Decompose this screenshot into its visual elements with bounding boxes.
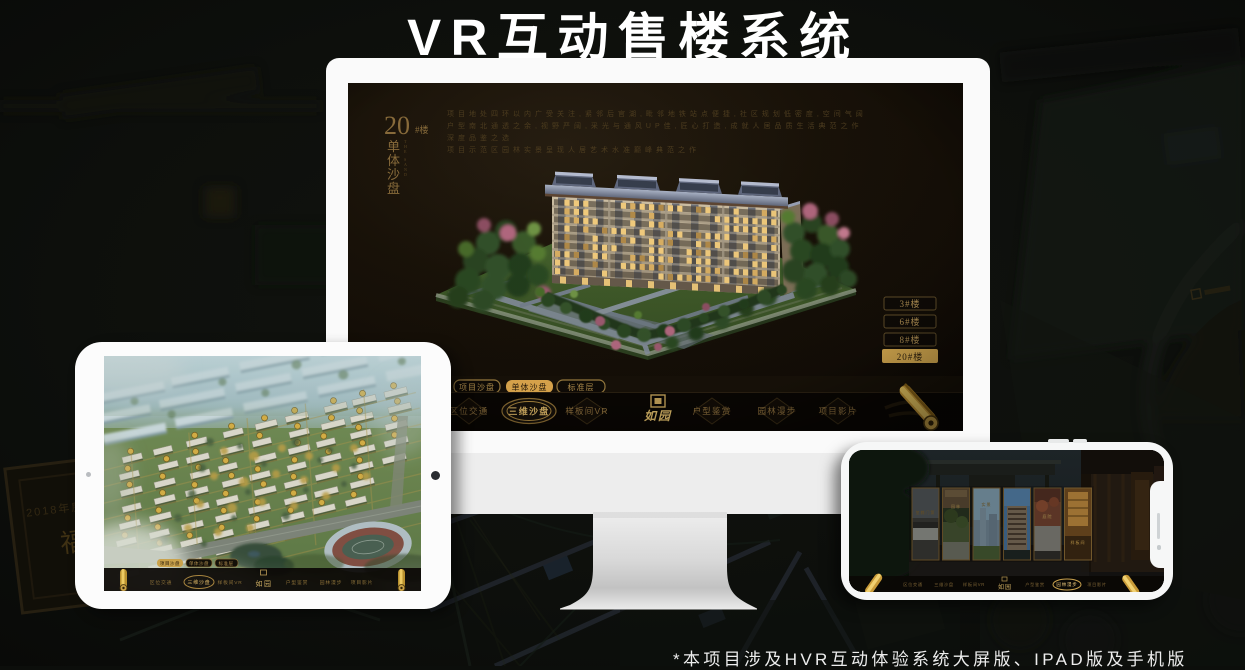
svg-text:样板间VR: 样板间VR: [217, 579, 242, 586]
svg-text:园林漫步: 园林漫步: [320, 579, 342, 586]
svg-text:三维沙盘: 三维沙盘: [187, 579, 210, 586]
svg-text:户型鉴赏: 户型鉴赏: [286, 579, 308, 586]
svg-text:单体沙盘: 单体沙盘: [189, 560, 209, 567]
svg-text:区位交通: 区位交通: [903, 581, 923, 588]
svg-text:样板间VR: 样板间VR: [963, 581, 985, 588]
svg-text:如园: 如园: [256, 579, 273, 588]
svg-text:标准层: 标准层: [219, 560, 234, 567]
svg-text:户型鉴赏: 户型鉴赏: [1025, 581, 1045, 588]
svg-text:项目沙盘: 项目沙盘: [160, 560, 180, 567]
svg-text:园林漫步: 园林漫步: [1056, 581, 1077, 588]
svg-text:项目影片: 项目影片: [351, 579, 373, 586]
svg-text:项目影片: 项目影片: [1087, 581, 1107, 588]
svg-text:三维沙盘: 三维沙盘: [934, 581, 954, 588]
svg-text:区位交通: 区位交通: [150, 579, 172, 586]
svg-text:如园: 如园: [998, 583, 1012, 591]
